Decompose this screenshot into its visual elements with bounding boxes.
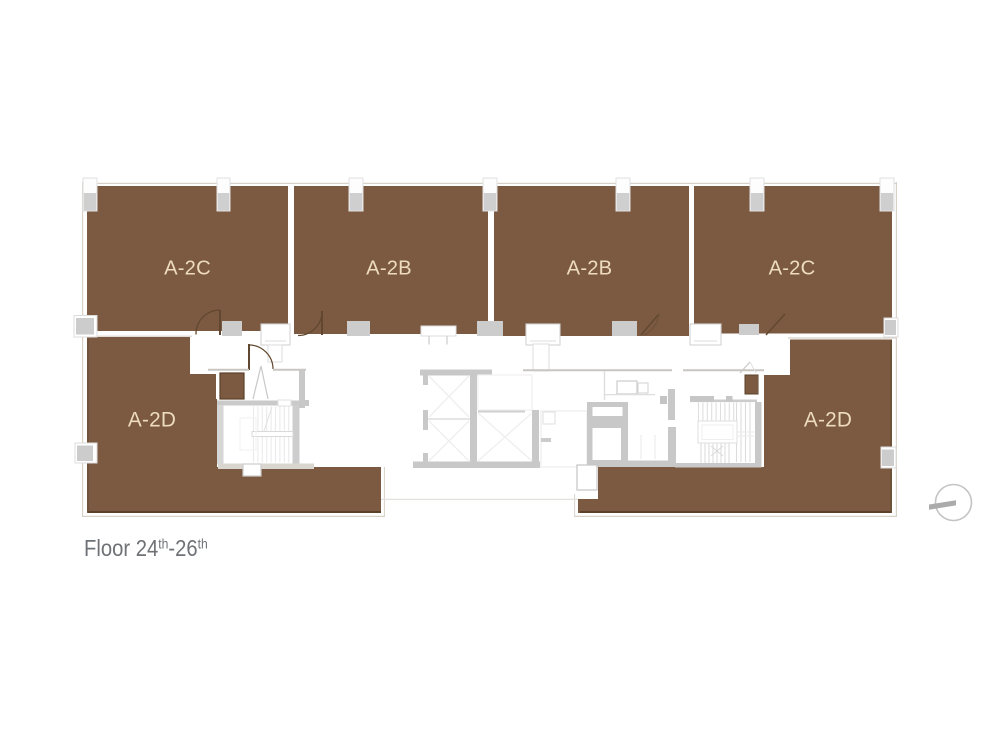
svg-text:A-2B: A-2B bbox=[366, 258, 412, 280]
svg-text:A-2C: A-2C bbox=[769, 258, 816, 280]
svg-text:Floor 24th-26th: Floor 24th-26th bbox=[84, 535, 208, 562]
svg-text:A-2C: A-2C bbox=[164, 258, 211, 280]
svg-text:A-2D: A-2D bbox=[804, 409, 852, 432]
svg-text:A-2B: A-2B bbox=[567, 258, 613, 280]
svg-text:A-2D: A-2D bbox=[128, 409, 176, 432]
